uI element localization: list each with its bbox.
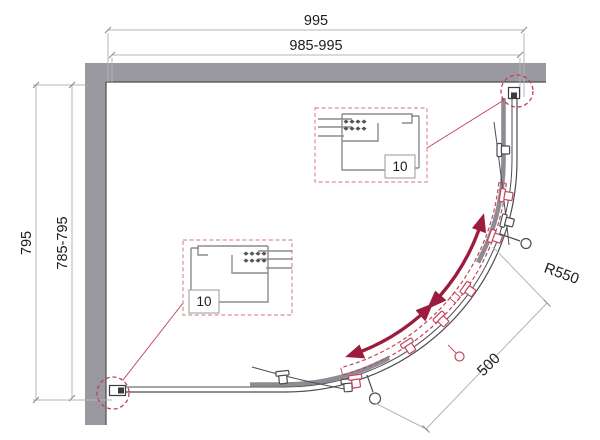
bracket-top-right-inner <box>511 93 517 99</box>
roller-icon <box>497 144 510 157</box>
track-inner-line <box>115 95 512 387</box>
shower-enclosure-plan: 995 985-995 795 785-795 <box>0 0 600 440</box>
detail-label-top: 10 <box>392 159 407 174</box>
slide-arrow-upper <box>441 231 479 296</box>
leader-line-top <box>427 100 504 148</box>
door-handles <box>367 234 531 404</box>
handle-open-position <box>448 345 464 361</box>
roller-icon <box>276 370 290 384</box>
dim-label-radius: R550 <box>542 260 582 288</box>
bracket-bottom-left-inner <box>118 388 124 394</box>
wall-top <box>85 63 546 82</box>
detail-box-bottom-content: 10 <box>189 246 292 313</box>
detail-box-top-content: 10 <box>318 114 419 178</box>
sliding-doors-closed <box>250 98 509 390</box>
dim-label-width-range: 985-995 <box>289 38 342 54</box>
leader-line-bottom <box>123 303 183 380</box>
arrowhead-icon <box>345 345 365 359</box>
detail-callouts <box>97 75 533 409</box>
dim-label-width-nominal: 995 <box>304 13 328 29</box>
handle-bottom-door <box>367 375 381 404</box>
dim-radius: R550 <box>493 247 581 303</box>
track-outer-line <box>115 95 517 392</box>
dim-label-depth-range: 785-795 <box>55 216 71 269</box>
technical-drawing-page: 995 985-995 795 785-795 <box>0 0 600 440</box>
dim-label-depth-nominal: 795 <box>19 231 35 255</box>
dim-depth-range: 785-795 <box>55 82 75 401</box>
fixed-glass-and-track <box>115 95 517 392</box>
roller-icon <box>499 188 513 203</box>
detail-box-borders <box>183 108 427 315</box>
dim-opening: 500 <box>375 300 551 433</box>
wall-left <box>85 63 106 425</box>
arrowhead-icon <box>472 213 486 233</box>
detail-label-bottom: 10 <box>196 294 211 309</box>
handle-right-door <box>500 234 531 249</box>
dim-label-opening: 500 <box>474 350 504 380</box>
